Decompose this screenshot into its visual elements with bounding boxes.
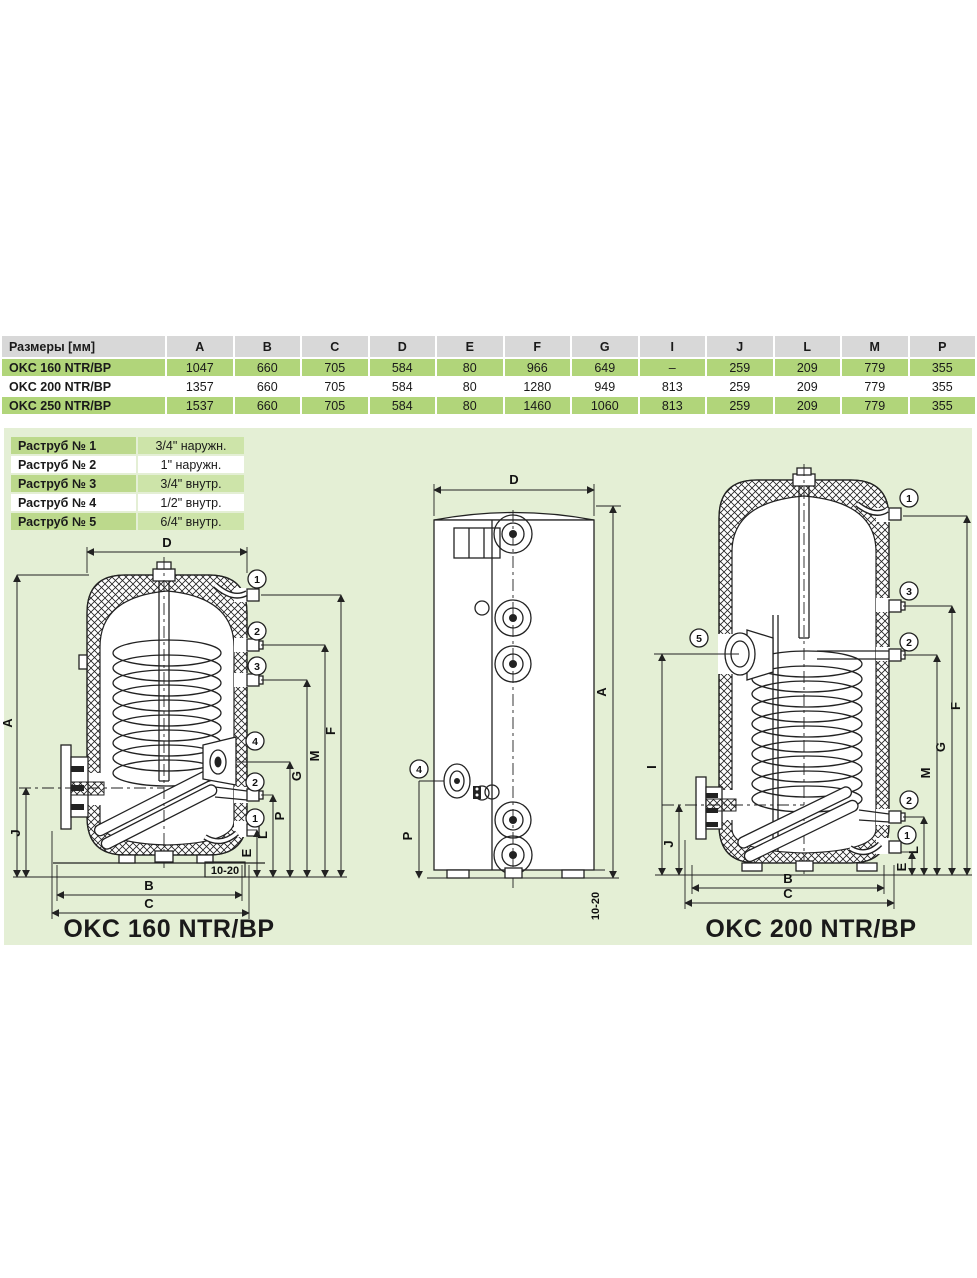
table-cell: 355 xyxy=(910,397,976,414)
drawings-panel: Раструб № 1 3/4" наружн. Раструб № 2 1" … xyxy=(4,428,972,945)
table-row: OKC 250 NTR/BP 1537 660 705 584 80 1460 … xyxy=(2,397,975,414)
dim-label-c: C xyxy=(783,886,793,901)
table-header-row: Размеры [мм] A B C D E F G I J L M P xyxy=(2,336,975,357)
dim-label-b: B xyxy=(783,871,792,886)
dim-label-m: M xyxy=(918,768,933,779)
foot xyxy=(505,868,522,878)
thermowell xyxy=(203,737,236,785)
callout-1: 1 xyxy=(254,574,260,586)
table-cell: 355 xyxy=(910,378,976,395)
callout-1b: 1 xyxy=(904,830,910,842)
callout-2: 2 xyxy=(254,626,260,638)
dim-label-a: A xyxy=(594,687,609,697)
dim-label-d: D xyxy=(162,535,171,550)
table-cell: 209 xyxy=(775,359,841,376)
dim-label-m: M xyxy=(307,751,322,762)
model-name: OKC 160 NTR/BP xyxy=(2,359,165,376)
legend-row: Раструб № 3 3/4" внутр. xyxy=(11,475,244,492)
catalog-page: Размеры [мм] A B C D E F G I J L M P OKC… xyxy=(0,0,977,1278)
foot xyxy=(857,863,877,871)
table-cell: 705 xyxy=(302,397,368,414)
table-cell: 209 xyxy=(775,378,841,395)
callout-1: 1 xyxy=(906,493,912,505)
small-wall-fitting xyxy=(79,655,87,669)
table-cell: 649 xyxy=(572,359,638,376)
table-cell: 584 xyxy=(370,397,436,414)
table-cell: 259 xyxy=(707,359,773,376)
table-cell: 949 xyxy=(572,378,638,395)
legend-value: 1" наружн. xyxy=(138,456,244,473)
technical-drawing-okc-160: D A J F M G P xyxy=(7,535,352,935)
dim-label-j: J xyxy=(661,840,676,847)
legend-row: Раструб № 1 3/4" наружн. xyxy=(11,437,244,454)
foot xyxy=(119,855,135,863)
callout-3: 3 xyxy=(906,586,912,598)
table-header-cell: B xyxy=(235,336,301,357)
table-header-cell: L xyxy=(775,336,841,357)
model-name: OKC 200 NTR/BP xyxy=(2,378,165,395)
foot xyxy=(562,870,584,878)
table-cell: 705 xyxy=(302,378,368,395)
legend-label: Раструб № 2 xyxy=(11,456,136,473)
legend-value: 3/4" наружн. xyxy=(138,437,244,454)
table-cell: 779 xyxy=(842,378,908,395)
table-cell: 813 xyxy=(640,397,706,414)
legend-label: Раструб № 1 xyxy=(11,437,136,454)
dim-label-l: L xyxy=(906,846,921,854)
table-cell: 966 xyxy=(505,359,571,376)
table-cell: 1060 xyxy=(572,397,638,414)
dim-label-d: D xyxy=(509,472,518,487)
table-cell: 209 xyxy=(775,397,841,414)
table-cell: 1357 xyxy=(167,378,233,395)
table-header-cell: F xyxy=(505,336,571,357)
legend-value: 3/4" внутр. xyxy=(138,475,244,492)
table-cell: 660 xyxy=(235,397,301,414)
table-cell: 1280 xyxy=(505,378,571,395)
dim-label-c: C xyxy=(144,896,154,911)
table-header-cell: P xyxy=(910,336,976,357)
dim-label-e: E xyxy=(894,862,909,871)
legend-label: Раструб № 4 xyxy=(11,494,136,511)
callout-4: 4 xyxy=(252,736,258,748)
model-name: OKC 250 NTR/BP xyxy=(2,397,165,414)
table-header-cell: E xyxy=(437,336,503,357)
table-cell: – xyxy=(640,359,706,376)
dim-label-a: A xyxy=(0,718,15,728)
table-cell: 1460 xyxy=(505,397,571,414)
dim-label-j: J xyxy=(8,829,23,836)
legend-row: Раструб № 5 6/4" внутр. xyxy=(11,513,244,530)
table-cell: 80 xyxy=(437,378,503,395)
wall-gap xyxy=(234,638,248,652)
table-cell: 259 xyxy=(707,378,773,395)
table-header-cell: I xyxy=(640,336,706,357)
callout-3: 3 xyxy=(254,661,260,673)
table-row: OKC 160 NTR/BP 1047 660 705 584 80 966 6… xyxy=(2,359,975,376)
legend-value: 1/2" внутр. xyxy=(138,494,244,511)
table-header-cell: D xyxy=(370,336,436,357)
foot xyxy=(447,870,469,878)
table-cell: 1047 xyxy=(167,359,233,376)
socket-legend: Раструб № 1 3/4" наружн. Раструб № 2 1" … xyxy=(11,437,244,532)
drawing-title-okc-160: OKC 160 NTR/BP xyxy=(34,915,304,944)
dim-label-p: P xyxy=(400,831,415,840)
dim-label-b: B xyxy=(144,878,153,893)
table-cell: 705 xyxy=(302,359,368,376)
dim-label-g: G xyxy=(933,742,948,752)
table-cell: 779 xyxy=(842,359,908,376)
table-cell: 779 xyxy=(842,397,908,414)
table-header-cell: J xyxy=(707,336,773,357)
table-header-cell: A xyxy=(167,336,233,357)
dim-label-e: E xyxy=(239,848,254,857)
table-header-cell: M xyxy=(842,336,908,357)
flange-port-5 xyxy=(725,630,773,680)
table-cell: 355 xyxy=(910,359,976,376)
table-header-cell: C xyxy=(302,336,368,357)
legend-label: Раструб № 3 xyxy=(11,475,136,492)
table-cell: 660 xyxy=(235,378,301,395)
dim-label-gap: 10-20 xyxy=(211,865,239,877)
callout-4-label: 4 xyxy=(416,764,422,776)
table-cell: 259 xyxy=(707,397,773,414)
callout-1b: 1 xyxy=(252,813,258,825)
callout-2b: 2 xyxy=(252,777,258,789)
foot xyxy=(742,863,762,871)
dim-label-p: P xyxy=(272,811,287,820)
tank-cap xyxy=(434,513,594,521)
technical-drawing-okc-200: I J F G M L E B xyxy=(647,460,976,925)
wall-gap xyxy=(876,809,890,825)
wall-gap xyxy=(876,598,890,612)
rating-label-box xyxy=(454,528,500,558)
table-cell: 80 xyxy=(437,397,503,414)
legend-row: Раструб № 2 1" наружн. xyxy=(11,456,244,473)
table-row: OKC 200 NTR/BP 1357 660 705 584 80 1280 … xyxy=(2,378,975,395)
table-header-cell: Размеры [мм] xyxy=(2,336,165,357)
wall-gap xyxy=(234,673,248,687)
table-cell: 660 xyxy=(235,359,301,376)
dim-label-f: F xyxy=(948,702,963,710)
callouts: 1 2 3 4 2 1 xyxy=(246,570,266,827)
callout-5: 5 xyxy=(696,633,702,645)
dim-label-gap: 10-20 xyxy=(590,892,602,920)
table-cell: 584 xyxy=(370,378,436,395)
dim-label-i: I xyxy=(644,765,659,769)
dim-label-g: G xyxy=(289,771,304,781)
foot xyxy=(796,861,813,871)
callout-2b: 2 xyxy=(906,795,912,807)
dimensions-table: Размеры [мм] A B C D E F G I J L M P OKC… xyxy=(0,334,977,416)
table-cell: 813 xyxy=(640,378,706,395)
drawing-title-okc-200: OKC 200 NTR/BP xyxy=(676,915,946,944)
legend-row: Раструб № 4 1/2" внутр. xyxy=(11,494,244,511)
table-cell: 1537 xyxy=(167,397,233,414)
drain-boss xyxy=(155,851,173,862)
technical-drawing-side-view: D A P 10-20 4 xyxy=(347,468,647,913)
legend-label: Раструб № 5 xyxy=(11,513,136,530)
table-cell: 80 xyxy=(437,359,503,376)
table-cell: 584 xyxy=(370,359,436,376)
legend-value: 6/4" внутр. xyxy=(138,513,244,530)
callout-2: 2 xyxy=(906,637,912,649)
table-header-cell: G xyxy=(572,336,638,357)
